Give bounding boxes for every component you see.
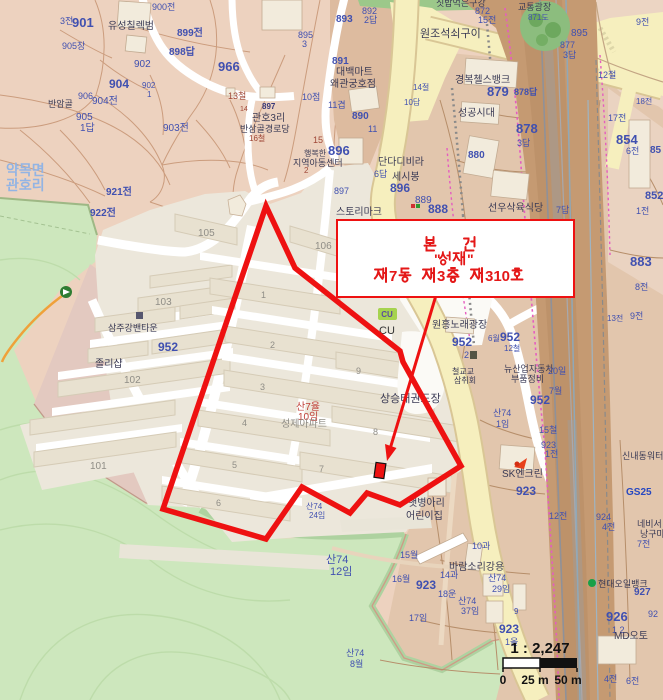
svg-text:8전: 8전: [635, 282, 648, 292]
svg-text:0: 0: [500, 673, 507, 687]
svg-text:102: 102: [124, 375, 141, 386]
svg-text:952: 952: [530, 393, 550, 407]
svg-text:878답: 878답: [514, 86, 538, 97]
svg-text:9전: 9전: [630, 311, 643, 321]
svg-text:877: 877: [560, 40, 575, 50]
svg-text:926: 926: [606, 609, 628, 624]
svg-text:924: 924: [596, 512, 611, 522]
svg-text:졸리샵: 졸리샵: [95, 358, 123, 370]
svg-text:893: 893: [336, 14, 353, 25]
svg-text:854: 854: [616, 132, 638, 147]
svg-text:어린이집: 어린이집: [406, 510, 443, 522]
svg-text:네비서: 네비서: [637, 519, 662, 529]
svg-text:906: 906: [78, 91, 93, 101]
svg-text:8월: 8월: [350, 658, 363, 669]
svg-text:15: 15: [313, 135, 323, 145]
svg-text:20일: 20일: [548, 366, 566, 376]
svg-text:17임: 17임: [409, 612, 427, 623]
svg-text:12임: 12임: [330, 565, 352, 578]
svg-text:9: 9: [356, 366, 361, 376]
svg-text:유성칠렉범: 유성칠렉범: [108, 20, 154, 32]
svg-text:원조석쇠구이: 원조석쇠구이: [420, 27, 481, 40]
svg-text:스토리마크: 스토리마크: [336, 206, 382, 218]
svg-text:신내동워터: 신내동워터: [622, 451, 663, 461]
svg-text:6월: 6월: [488, 333, 500, 343]
svg-text:899전: 899전: [177, 26, 203, 39]
svg-text:871도: 871도: [528, 13, 549, 22]
svg-text:성제아파트: 성제아파트: [281, 418, 327, 430]
svg-text:삼취회: 삼취회: [454, 375, 476, 385]
svg-text:산74: 산74: [326, 553, 348, 566]
svg-text:5: 5: [232, 460, 237, 470]
svg-text:1답: 1답: [80, 122, 95, 134]
svg-text:산74: 산74: [458, 596, 476, 606]
svg-text:904: 904: [109, 77, 129, 91]
svg-text:12철: 12철: [504, 343, 520, 353]
svg-text:지역아동센터: 지역아동센터: [293, 158, 343, 168]
svg-text:852: 852: [645, 190, 663, 202]
svg-text:관호리: 관호리: [6, 177, 45, 193]
svg-text:산74: 산74: [493, 408, 511, 418]
svg-text:산74: 산74: [346, 648, 364, 658]
svg-text:대백마트: 대백마트: [336, 66, 373, 78]
svg-text:896: 896: [390, 181, 410, 195]
svg-text:산74: 산74: [488, 573, 506, 583]
svg-text:106: 106: [315, 241, 332, 252]
svg-text:101: 101: [90, 461, 107, 472]
svg-text:13철: 13철: [228, 91, 246, 101]
svg-text:10점: 10점: [302, 91, 320, 102]
svg-text:단다디비라: 단다디비라: [378, 156, 424, 168]
svg-text:905: 905: [76, 112, 93, 123]
svg-text:966: 966: [218, 59, 240, 74]
svg-text:3: 3: [260, 382, 265, 392]
svg-text:29임: 29임: [492, 583, 510, 594]
svg-text:관호3리: 관호3리: [252, 112, 285, 124]
svg-text:2: 2: [464, 350, 469, 360]
svg-text:18운: 18운: [438, 589, 456, 599]
svg-text:": ": [467, 251, 474, 267]
svg-text:원흥노래광장: 원흥노래광장: [432, 318, 487, 331]
svg-text:뉴산업자동차: 뉴산업자동차: [504, 363, 554, 374]
svg-text:952: 952: [500, 330, 520, 344]
svg-text:10과: 10과: [472, 541, 490, 551]
svg-text:산74: 산74: [306, 501, 323, 511]
svg-text:879: 879: [487, 84, 509, 99]
svg-text:삼주강밴타운: 삼주강밴타운: [108, 323, 158, 333]
svg-text:6답: 6답: [374, 168, 387, 179]
svg-text:952: 952: [158, 340, 178, 354]
svg-text:선우삭육식당: 선우삭육식당: [488, 202, 543, 214]
svg-text:9: 9: [514, 607, 519, 616]
svg-text:GS25: GS25: [626, 487, 652, 498]
svg-text:921전: 921전: [106, 185, 132, 198]
svg-text:1 : 2,247: 1 : 2,247: [510, 640, 569, 657]
svg-text:1: 1: [261, 290, 266, 300]
svg-text:반삼골경로당: 반삼골경로당: [240, 123, 290, 134]
svg-text:교통광장: 교통광장: [518, 1, 551, 12]
svg-text:7답: 7답: [556, 204, 569, 215]
svg-text:905장: 905장: [62, 41, 85, 51]
svg-text:7전: 7전: [637, 539, 650, 549]
svg-text:92: 92: [648, 609, 658, 619]
svg-text:13전: 13전: [607, 313, 623, 323]
svg-text:24임: 24임: [309, 511, 325, 520]
svg-text:14과: 14과: [440, 570, 458, 580]
svg-text:927: 927: [634, 587, 651, 598]
svg-text:4전: 4전: [604, 674, 617, 684]
svg-text:16철: 16철: [249, 133, 265, 143]
svg-text:반암골: 반암골: [48, 98, 73, 109]
svg-text:895: 895: [571, 28, 588, 39]
svg-text:상승태권도장: 상승태권도장: [380, 392, 441, 405]
svg-text:CU: CU: [381, 310, 393, 319]
svg-text:902: 902: [134, 59, 151, 70]
svg-text:923: 923: [499, 622, 519, 636]
svg-text:7월: 7월: [549, 385, 562, 396]
svg-text:923: 923: [516, 484, 536, 498]
svg-text:9전: 9전: [636, 17, 649, 27]
svg-text:부품정비: 부품정비: [511, 374, 544, 384]
svg-text:15철: 15철: [539, 425, 557, 435]
svg-text:SK엔크린: SK엔크린: [502, 468, 543, 480]
svg-text:3: 3: [437, 268, 445, 285]
svg-text:897: 897: [262, 102, 276, 111]
svg-text:18전: 18전: [636, 96, 652, 106]
svg-text:896: 896: [328, 143, 350, 158]
svg-text:15월: 15월: [400, 549, 418, 560]
svg-text:3답: 3답: [563, 49, 576, 60]
svg-text:3: 3: [302, 39, 307, 49]
svg-text:891: 891: [332, 56, 349, 67]
svg-text:952: 952: [452, 335, 472, 349]
svg-text:약목면: 약목면: [6, 162, 45, 178]
svg-text:1전: 1전: [636, 206, 649, 216]
svg-text:12전: 12전: [549, 511, 567, 521]
svg-text:17전: 17전: [608, 113, 626, 123]
svg-text:1전: 1전: [545, 449, 558, 459]
svg-text:85: 85: [650, 145, 662, 156]
svg-text:105: 105: [198, 228, 215, 239]
svg-text:103: 103: [155, 297, 172, 308]
svg-text:6전: 6전: [626, 676, 639, 686]
svg-text:6: 6: [216, 498, 221, 508]
svg-text:16월: 16월: [392, 573, 410, 584]
svg-text:900전: 900전: [152, 2, 175, 12]
svg-text:922전: 922전: [90, 206, 116, 219]
svg-text:3답: 3답: [517, 137, 530, 148]
svg-text:883: 883: [630, 254, 652, 269]
svg-text:25 m: 25 m: [521, 673, 548, 687]
svg-text:10답: 10답: [404, 97, 421, 107]
svg-text:15전: 15전: [478, 15, 496, 25]
svg-text:4: 4: [242, 418, 247, 428]
svg-text:37임: 37임: [461, 605, 479, 616]
svg-text:2답: 2답: [364, 14, 377, 25]
svg-text:903전: 903전: [163, 122, 189, 134]
svg-text:7: 7: [389, 268, 397, 285]
svg-text:1임: 1임: [496, 418, 509, 429]
svg-text:310: 310: [485, 268, 510, 285]
svg-text:철교교: 철교교: [452, 366, 474, 376]
svg-text:888: 888: [428, 202, 448, 216]
svg-text:897: 897: [334, 186, 349, 196]
svg-text:낭구마: 낭구마: [640, 529, 663, 539]
svg-text:878: 878: [516, 121, 538, 136]
svg-text:14절: 14절: [413, 83, 429, 92]
svg-text:901: 901: [72, 15, 94, 30]
svg-text:6전: 6전: [626, 146, 639, 156]
svg-text:902: 902: [142, 81, 156, 90]
svg-text:4전: 4전: [602, 522, 615, 532]
svg-text:2: 2: [270, 340, 275, 350]
svg-text:왜관궁호점: 왜관궁호점: [330, 78, 376, 90]
svg-text:923: 923: [416, 578, 436, 592]
svg-text:7: 7: [319, 464, 324, 474]
svg-text:MD오토: MD오토: [614, 631, 648, 642]
svg-text:1: 1: [147, 90, 152, 99]
svg-text:898답: 898답: [169, 46, 196, 58]
svg-text:행복한: 행복한: [304, 148, 327, 158]
svg-text:50 m: 50 m: [554, 673, 581, 687]
svg-text:904전: 904전: [92, 95, 118, 107]
svg-text:11겹: 11겹: [328, 99, 346, 110]
svg-text:890: 890: [352, 111, 369, 122]
svg-text:12절: 12절: [598, 69, 616, 80]
svg-text:11: 11: [368, 124, 377, 134]
svg-text:880: 880: [468, 150, 485, 161]
svg-text:8: 8: [373, 427, 378, 437]
svg-text:14: 14: [240, 106, 248, 113]
svg-text:성공시대: 성공시대: [458, 107, 495, 119]
